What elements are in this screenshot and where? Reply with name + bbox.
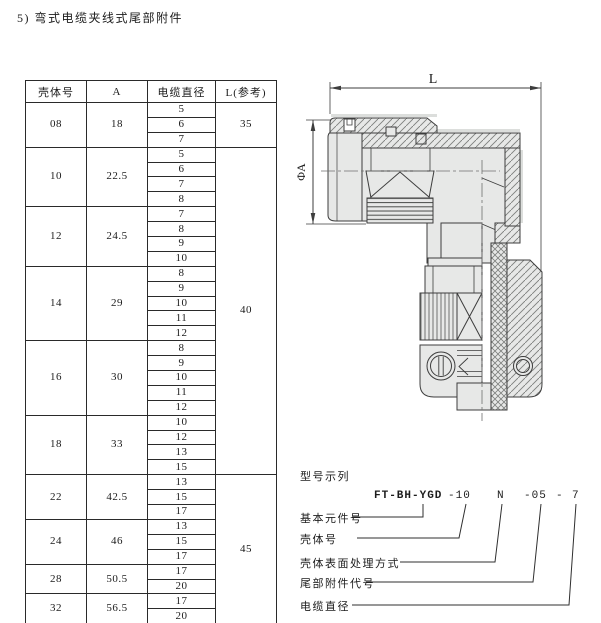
cable-diameter-cell: 12 <box>148 326 216 341</box>
cable-diameter-cell: 15 <box>148 460 216 475</box>
column-header: 壳体号 <box>26 81 87 103</box>
code-surface-treatment: N <box>497 490 505 502</box>
column-header: 电缆直径 <box>148 81 216 103</box>
a-dimension-cell: 18 <box>87 103 148 148</box>
a-dimension-cell: 29 <box>87 266 148 340</box>
cable-diameter-cell: 11 <box>148 311 216 326</box>
connector-body <box>328 118 542 410</box>
cable-diameter-cell: 8 <box>148 192 216 207</box>
neck-rim <box>428 258 482 266</box>
a-dimension-cell: 30 <box>87 341 148 415</box>
a-dimension-cell: 22.5 <box>87 147 148 207</box>
cable-diameter-cell: 10 <box>148 415 216 430</box>
clamp-nut-knurl <box>420 293 457 340</box>
document-page: 5) 弯式电缆夹线式尾部附件 壳体号A电缆直径L(参考) 08185356710… <box>0 0 601 623</box>
cable-diameter-cell: 20 <box>148 579 216 594</box>
label-shell-number: 壳体号 <box>300 531 338 547</box>
table-row: 2242.51345 <box>26 475 277 490</box>
cable-section <box>491 243 507 410</box>
a-dimension-cell: 56.5 <box>87 594 148 623</box>
l-reference-cell: 40 <box>216 147 277 475</box>
cable-diameter-cell: 15 <box>148 490 216 505</box>
label-tail-accessory: 尾部附件代号 <box>300 575 375 591</box>
cable-diameter-cell: 9 <box>148 281 216 296</box>
spec-table-body: 0818535671022.55406781224.57891014298910… <box>26 103 277 623</box>
cone-insert <box>366 171 434 198</box>
code-tail-accessory: -05 <box>524 490 547 502</box>
l-reference-cell: 45 <box>216 475 277 623</box>
shell-number-cell: 16 <box>26 341 87 415</box>
cable-diameter-cell: 17 <box>148 549 216 564</box>
neck <box>425 266 482 293</box>
shell-number-cell: 18 <box>26 415 87 475</box>
cable-diameter-cell: 15 <box>148 534 216 549</box>
cable-diameter-cell: 8 <box>148 341 216 356</box>
clamp-screw <box>427 352 455 380</box>
cable-diameter-cell: 5 <box>148 103 216 118</box>
code-cable-diameter: 7 <box>572 490 580 502</box>
cable-diameter-cell: 8 <box>148 222 216 237</box>
cable-diameter-cell: 17 <box>148 564 216 579</box>
cable-diameter-cell: 6 <box>148 117 216 132</box>
l-reference-cell: 35 <box>216 103 277 148</box>
cable-diameter-cell: 7 <box>148 132 216 147</box>
shell-number-cell: 22 <box>26 475 87 520</box>
cable-diameter-cell: 8 <box>148 266 216 281</box>
dim-phiA-label: ΦA <box>294 163 308 181</box>
shell-number-cell: 10 <box>26 147 87 207</box>
section-title: 5) 弯式电缆夹线式尾部附件 <box>17 9 183 26</box>
exit-tube <box>457 383 491 410</box>
header-row: 壳体号A电缆直径L(参考) <box>26 81 277 103</box>
leader-shell-number <box>357 504 466 538</box>
shell-number-cell: 08 <box>26 103 87 148</box>
shell-number-cell: 24 <box>26 519 87 564</box>
cable-diameter-cell: 11 <box>148 385 216 400</box>
shell-number-cell: 32 <box>26 594 87 623</box>
knurled-ring <box>367 198 433 223</box>
a-dimension-cell: 33 <box>87 415 148 475</box>
a-dimension-cell: 24.5 <box>87 207 148 267</box>
label-surface-treatment: 壳体表面处理方式 <box>300 555 400 571</box>
code-shell-number: -10 <box>448 490 471 502</box>
cable-diameter-cell: 13 <box>148 519 216 534</box>
plug-flange <box>328 131 362 221</box>
cable-diameter-cell: 17 <box>148 505 216 520</box>
cable-diameter-cell: 9 <box>148 237 216 252</box>
a-dimension-cell: 46 <box>87 519 148 564</box>
cable-diameter-cell: 9 <box>148 356 216 371</box>
technical-drawing: L ΦA <box>290 55 601 435</box>
cable-diameter-cell: 17 <box>148 594 216 609</box>
cable-diameter-cell: 10 <box>148 296 216 311</box>
cable-diameter-cell: 5 <box>148 147 216 162</box>
column-header: A <box>87 81 148 103</box>
shell-number-cell: 28 <box>26 564 87 594</box>
shell-number-cell: 12 <box>26 207 87 267</box>
shell-number-cell: 14 <box>26 266 87 340</box>
designation-title: 型号示列 <box>300 468 350 484</box>
a-dimension-cell: 50.5 <box>87 564 148 594</box>
cable-diameter-cell: 6 <box>148 162 216 177</box>
cable-diameter-cell: 13 <box>148 475 216 490</box>
cable-diameter-cell: 10 <box>148 371 216 386</box>
code-separator: - <box>556 490 564 502</box>
column-header: L(参考) <box>216 81 277 103</box>
cable-diameter-cell: 12 <box>148 430 216 445</box>
table-row: 0818535 <box>26 103 277 118</box>
cable-diameter-cell: 7 <box>148 177 216 192</box>
label-basic-part: 基本元件号 <box>300 510 363 526</box>
right-clamp-half <box>507 260 542 397</box>
cable-diameter-cell: 10 <box>148 251 216 266</box>
dim-L-label: L <box>429 72 438 87</box>
table-row: 1022.5540 <box>26 147 277 162</box>
cable-diameter-cell: 20 <box>148 609 216 623</box>
code-basic-part: FT-BH-YGD <box>374 490 442 502</box>
down-tube <box>441 223 482 258</box>
spec-table-head: 壳体号A电缆直径L(参考) <box>26 81 277 103</box>
cable-diameter-cell: 7 <box>148 207 216 222</box>
cable-diameter-cell: 12 <box>148 400 216 415</box>
a-dimension-cell: 42.5 <box>87 475 148 520</box>
cable-diameter-cell: 13 <box>148 445 216 460</box>
leader-surface-treatment <box>400 504 502 562</box>
label-cable-diameter: 电缆直径 <box>300 598 350 614</box>
right-wall <box>505 148 520 226</box>
spec-table: 壳体号A电缆直径L(参考) 0818535671022.55406781224.… <box>25 80 277 623</box>
